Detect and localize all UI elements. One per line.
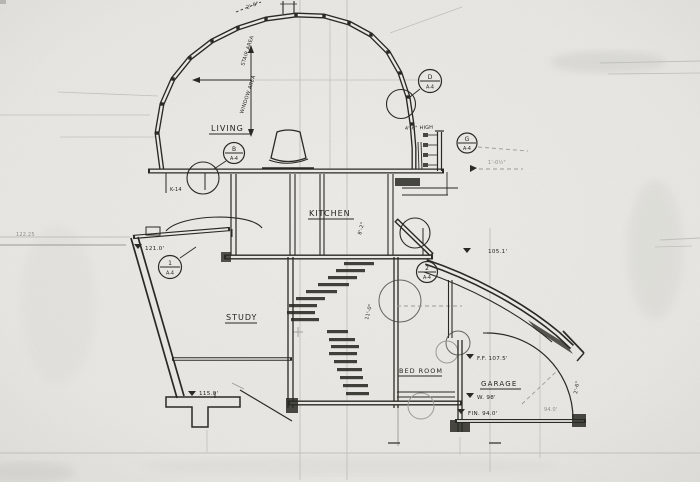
svg-text:A-4: A-4: [463, 146, 471, 152]
room-label-living: LIVING: [211, 124, 244, 133]
elevation-bedroom-ff: F.F. 107.5': [477, 356, 508, 362]
elevation-study-floor: 121.0': [145, 246, 164, 252]
detail-bubble-b: B A-4: [224, 143, 245, 164]
svg-text:D: D: [428, 74, 433, 81]
paper-texture: [0, 0, 700, 482]
room-label-garage: GARAGE: [481, 380, 518, 388]
dimension-wall-offset: 1'-0½": [488, 159, 506, 166]
detail-bubble-2: 2 A-4: [417, 262, 438, 283]
elevation-garage-wall: W. 98': [477, 395, 496, 401]
elevation-garage-slab: 94.0': [544, 407, 558, 413]
section-drawing-canvas: 122.25 2'-0" STAIR: [0, 0, 700, 482]
svg-text:2: 2: [425, 265, 429, 272]
room-label-bedroom: BED ROOM: [399, 367, 443, 375]
detail-bubble-g: G A-4: [457, 133, 477, 153]
svg-text:A-4: A-4: [423, 275, 431, 281]
svg-text:1: 1: [168, 260, 172, 267]
scanned-section-drawing: 122.25 2'-0" STAIR: [0, 0, 700, 482]
grid-reference: K-14: [170, 187, 182, 193]
elevation-footing: 115.0': [199, 391, 218, 397]
elevation-left-margin: 122.25: [16, 232, 35, 238]
svg-text:A-4: A-4: [166, 271, 174, 277]
svg-text:A-4: A-4: [426, 85, 434, 91]
room-label-study: STUDY: [226, 313, 257, 322]
svg-text:B: B: [232, 146, 236, 153]
elevation-garage-fin: FIN. 94.0': [468, 411, 498, 417]
room-label-kitchen: KITCHEN: [309, 209, 351, 218]
svg-text:A-4: A-4: [230, 156, 238, 162]
elevation-roof-edge: 105.1': [488, 249, 507, 255]
svg-text:G: G: [465, 136, 470, 143]
